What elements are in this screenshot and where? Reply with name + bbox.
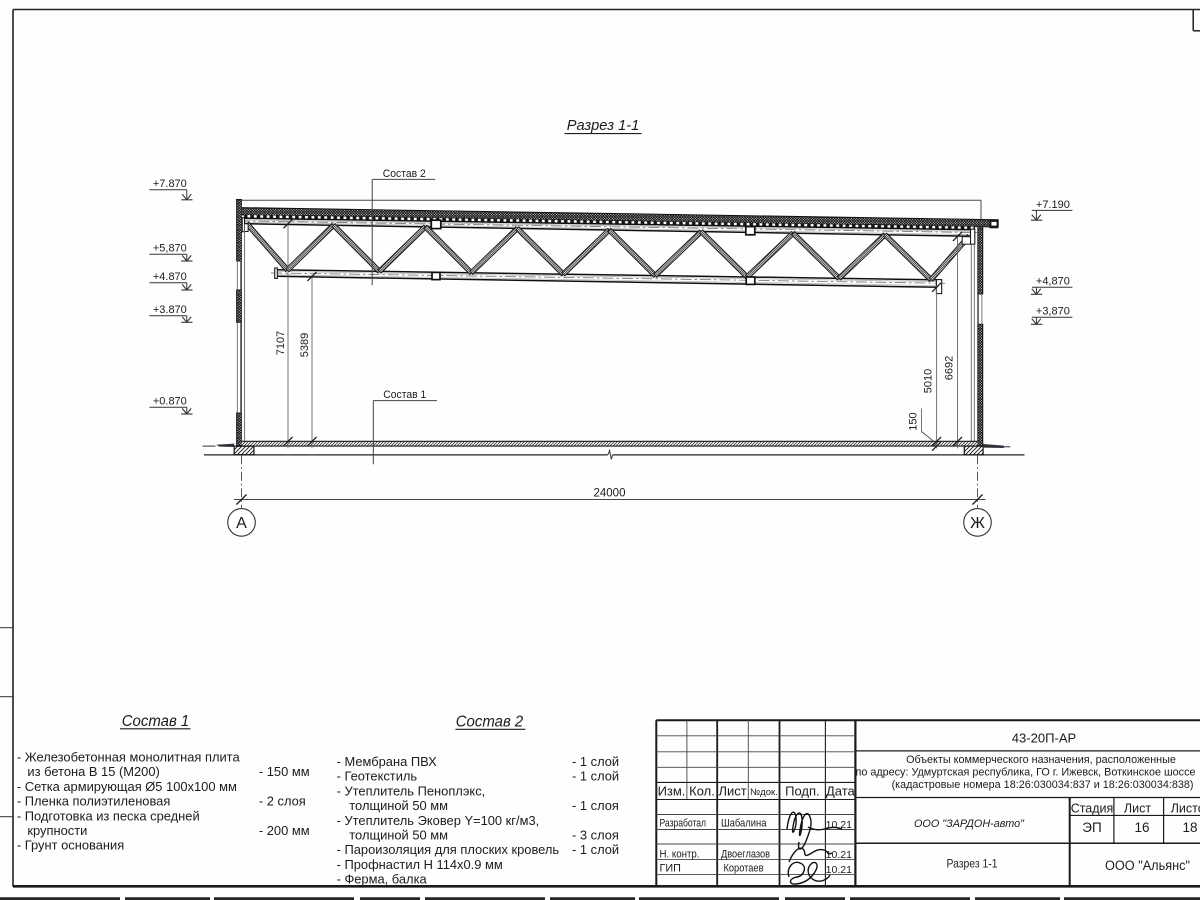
svg-text:- Ферма, балка: - Ферма, балка [337,872,428,887]
svg-text:5389: 5389 [299,333,311,357]
svg-text:- 200 мм: - 200 мм [259,823,310,838]
svg-text:ЭП: ЭП [1082,820,1101,835]
svg-text:Коротаев: Коротаев [724,863,764,875]
svg-text:- 3 слоя: - 3 слоя [572,828,619,843]
svg-text:ООО "ЗАРДОН-авто": ООО "ЗАРДОН-авто" [914,818,1025,830]
svg-text:+3,870: +3,870 [1036,306,1070,318]
svg-text:16: 16 [1134,820,1149,835]
svg-text:(кадастровые номера 18:26:0300: (кадастровые номера 18:26:030034:837 и 1… [892,779,1194,791]
svg-text:Кол.: Кол. [689,784,715,799]
svg-text:Стадия: Стадия [1071,801,1114,815]
svg-text:Н. контр.: Н. контр. [660,848,700,860]
svg-text:- Пленка полиэтиленовая: - Пленка полиэтиленовая [17,794,170,809]
svg-text:Лист: Лист [1124,801,1151,815]
svg-text:Листов: Листов [1171,801,1200,815]
svg-text:из бетона В 15 (М200): из бетона В 15 (М200) [27,764,159,779]
svg-text:+4,870: +4,870 [1036,276,1070,288]
svg-text:№док.: №док. [750,787,778,798]
svg-text:Лист: Лист [718,784,746,799]
svg-text:- Утеплитель Пеноплэкс,: - Утеплитель Пеноплэкс, [337,783,486,798]
svg-text:ГИП: ГИП [660,863,681,875]
svg-text:6692: 6692 [944,356,956,380]
svg-text:А: А [236,515,247,532]
svg-text:крупности: крупности [27,823,87,838]
svg-text:150: 150 [907,412,919,430]
svg-text:+5,870: +5,870 [153,243,187,255]
svg-text:Разработал: Разработал [660,817,707,829]
svg-text:7107: 7107 [275,331,287,355]
svg-text:- Утеплитель Эковер Y=100 кг/м: - Утеплитель Эковер Y=100 кг/м3, [337,813,540,828]
svg-text:+7.190: +7.190 [1036,199,1070,211]
svg-text:24000: 24000 [594,488,626,500]
svg-text:Двоеглазов: Двоеглазов [721,848,770,860]
svg-text:Состав 1: Состав 1 [383,389,426,401]
svg-text:толщиной 50 мм: толщиной 50 мм [349,798,448,813]
svg-text:толщиной 50 мм: толщиной 50 мм [349,828,448,843]
svg-text:Шабалина: Шабалина [721,817,767,829]
svg-text:Разрез 1-1: Разрез 1-1 [567,117,640,134]
svg-text:- 1 слой: - 1 слой [572,769,619,784]
svg-text:- Мембрана ПВХ: - Мембрана ПВХ [337,754,438,769]
svg-text:+4.870: +4.870 [153,271,187,283]
svg-text:10.21: 10.21 [826,849,852,861]
svg-text:- Грунт основания: - Грунт основания [17,838,124,853]
svg-text:- Геотекстиль: - Геотекстиль [337,769,418,784]
svg-text:+7.870: +7.870 [153,178,187,190]
svg-text:Состав 1: Состав 1 [122,713,190,730]
svg-text:Разрез 1-1: Разрез 1-1 [947,856,998,870]
svg-text:Состав 2: Состав 2 [456,714,524,731]
svg-text:Ж: Ж [970,515,985,532]
svg-text:по адресу: Удмуртская республи: по адресу: Удмуртская республика, ГО г. … [855,767,1195,779]
svg-text:+3.870: +3.870 [153,304,187,316]
svg-text:- 150 мм: - 150 мм [259,764,310,779]
svg-text:Дата: Дата [826,784,856,799]
svg-text:- 1 слоя: - 1 слоя [572,798,619,813]
svg-text:- 1 слой: - 1 слой [572,842,619,857]
svg-text:ООО "Альянс": ООО "Альянс" [1105,858,1190,873]
svg-text:- Сетка армирующая Ø5 100х100: - Сетка армирующая Ø5 100х100 мм [17,779,237,794]
svg-text:18: 18 [1182,820,1197,835]
svg-text:Подп.: Подп. [785,784,820,799]
svg-text:- Подготовка из песка средней: - Подготовка из песка средней [17,808,200,823]
svg-text:10.21: 10.21 [826,864,852,876]
svg-text:43-20П-АР: 43-20П-АР [1012,731,1077,746]
svg-text:- Профнастил Н 114х0.9 мм: - Профнастил Н 114х0.9 мм [337,857,503,872]
svg-text:- Пароизоляция для плоских кро: - Пароизоляция для плоских кровель [337,842,560,857]
svg-text:Объекты коммерческого назначен: Объекты коммерческого назначения, распол… [906,754,1176,766]
svg-text:- 1 слой: - 1 слой [572,754,619,769]
svg-text:Состав 2: Состав 2 [383,168,426,180]
svg-text:5010: 5010 [923,369,935,393]
svg-text:+0.870: +0.870 [153,396,187,408]
svg-text:Изм.: Изм. [658,784,686,799]
svg-text:- 2 слоя: - 2 слоя [259,794,306,809]
svg-text:10.21: 10.21 [826,819,852,831]
svg-text:- Железобетонная монолитная п: - Железобетонная монолитная плита [17,750,241,765]
